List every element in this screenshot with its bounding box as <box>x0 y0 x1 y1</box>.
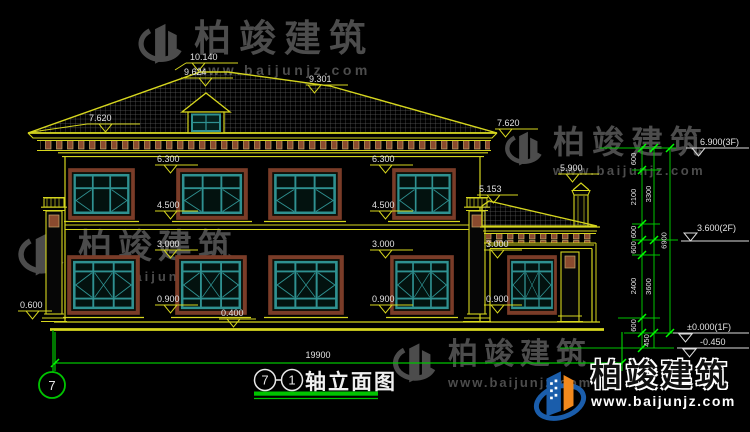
title-axis-to: 1 <box>288 373 295 388</box>
svg-text:7: 7 <box>48 378 55 393</box>
window-2f-3 <box>270 170 340 218</box>
site-logo-url: www.baijunjz.com <box>591 393 736 409</box>
dim-19900: 19900 <box>305 350 330 360</box>
floor-mark-ground: -0.450 <box>677 337 749 357</box>
floor-mark-2f: 3.600(2F) <box>681 223 749 241</box>
title-axis-from: 7 <box>261 373 268 388</box>
pilaster-left <box>41 198 67 322</box>
plinth-ground <box>50 322 604 330</box>
dim-600: 600 <box>629 319 638 332</box>
title-underline <box>254 392 378 396</box>
dim-600: 600 <box>629 226 638 239</box>
title-text: 轴立面图 <box>305 370 397 394</box>
level-lintel1-mid: 3.000 <box>370 239 413 258</box>
svg-text:3.000: 3.000 <box>372 239 395 249</box>
dim-600: 600 <box>629 153 638 166</box>
svg-text:4.500: 4.500 <box>372 200 395 210</box>
svg-text:0.900: 0.900 <box>372 294 395 304</box>
svg-text:-0.450: -0.450 <box>700 337 726 347</box>
site-logo-brand: 柏竣建筑 <box>591 360 736 393</box>
dim-600: 600 <box>629 241 638 254</box>
chimney <box>572 183 590 226</box>
svg-text:±0.000(1F): ±0.000(1F) <box>687 322 731 332</box>
level-eave-right: 7.620 <box>495 118 538 137</box>
dim-2100: 2100 <box>629 189 638 206</box>
svg-text:3.000: 3.000 <box>157 239 180 249</box>
level-lintel1-left: 3.000 <box>155 239 198 258</box>
vent-box <box>472 215 482 227</box>
window-2f-1 <box>70 170 133 218</box>
svg-text:4.500: 4.500 <box>157 200 180 210</box>
site-logo: 柏竣建筑 www.baijunjz.com <box>533 360 736 426</box>
svg-text:7.620: 7.620 <box>497 118 520 128</box>
dentil-strip <box>40 141 490 150</box>
eave-cornice <box>28 133 497 157</box>
svg-text:0.900: 0.900 <box>157 294 180 304</box>
floor-level-marks: 6.900(3F) 3.600(2F) ±0.000(1F) -0.450 <box>673 137 749 357</box>
dim-2400: 2400 <box>629 278 638 295</box>
dim-tick-marks <box>638 144 674 352</box>
svg-text:6.300: 6.300 <box>372 154 395 164</box>
annex-pilaster <box>557 252 583 322</box>
level-chimney-top: 5.900 <box>558 163 599 182</box>
axis-bubble-7: 7 <box>39 330 65 398</box>
second-floor-windows <box>64 170 460 221</box>
svg-text:0.400: 0.400 <box>221 308 244 318</box>
dim-3600: 3600 <box>644 278 653 295</box>
svg-text:0.600: 0.600 <box>20 300 43 310</box>
svg-text:0.900: 0.900 <box>486 294 509 304</box>
svg-text:3.000: 3.000 <box>486 239 509 249</box>
svg-text:6.300: 6.300 <box>157 154 180 164</box>
dim-450: 450 <box>642 334 651 347</box>
svg-text:10.140: 10.140 <box>190 52 218 62</box>
cad-elevation-screenshot: { "drawing": { "title": { "axis_from": "… <box>0 0 750 432</box>
window-1f-3 <box>270 257 341 313</box>
drawing-title: 7 1 轴立面图 <box>254 370 397 399</box>
svg-text:5.153: 5.153 <box>479 184 502 194</box>
dim-6900: 6900 <box>660 232 669 249</box>
floor-mark-3f: 6.900(3F) <box>686 137 749 156</box>
vent-box <box>49 215 59 227</box>
first-floor-windows <box>63 257 458 317</box>
svg-text:3.600(2F): 3.600(2F) <box>697 223 736 233</box>
window-1f-1 <box>69 257 138 313</box>
svg-text:5.900: 5.900 <box>560 163 583 173</box>
svg-text:9.624: 9.624 <box>184 67 207 77</box>
svg-text:9.301: 9.301 <box>309 74 332 84</box>
svg-text:7.620: 7.620 <box>89 113 112 123</box>
svg-text:6.900(3F): 6.900(3F) <box>700 137 739 147</box>
dim-3300: 3300 <box>644 186 653 203</box>
site-logo-icon <box>533 360 587 426</box>
